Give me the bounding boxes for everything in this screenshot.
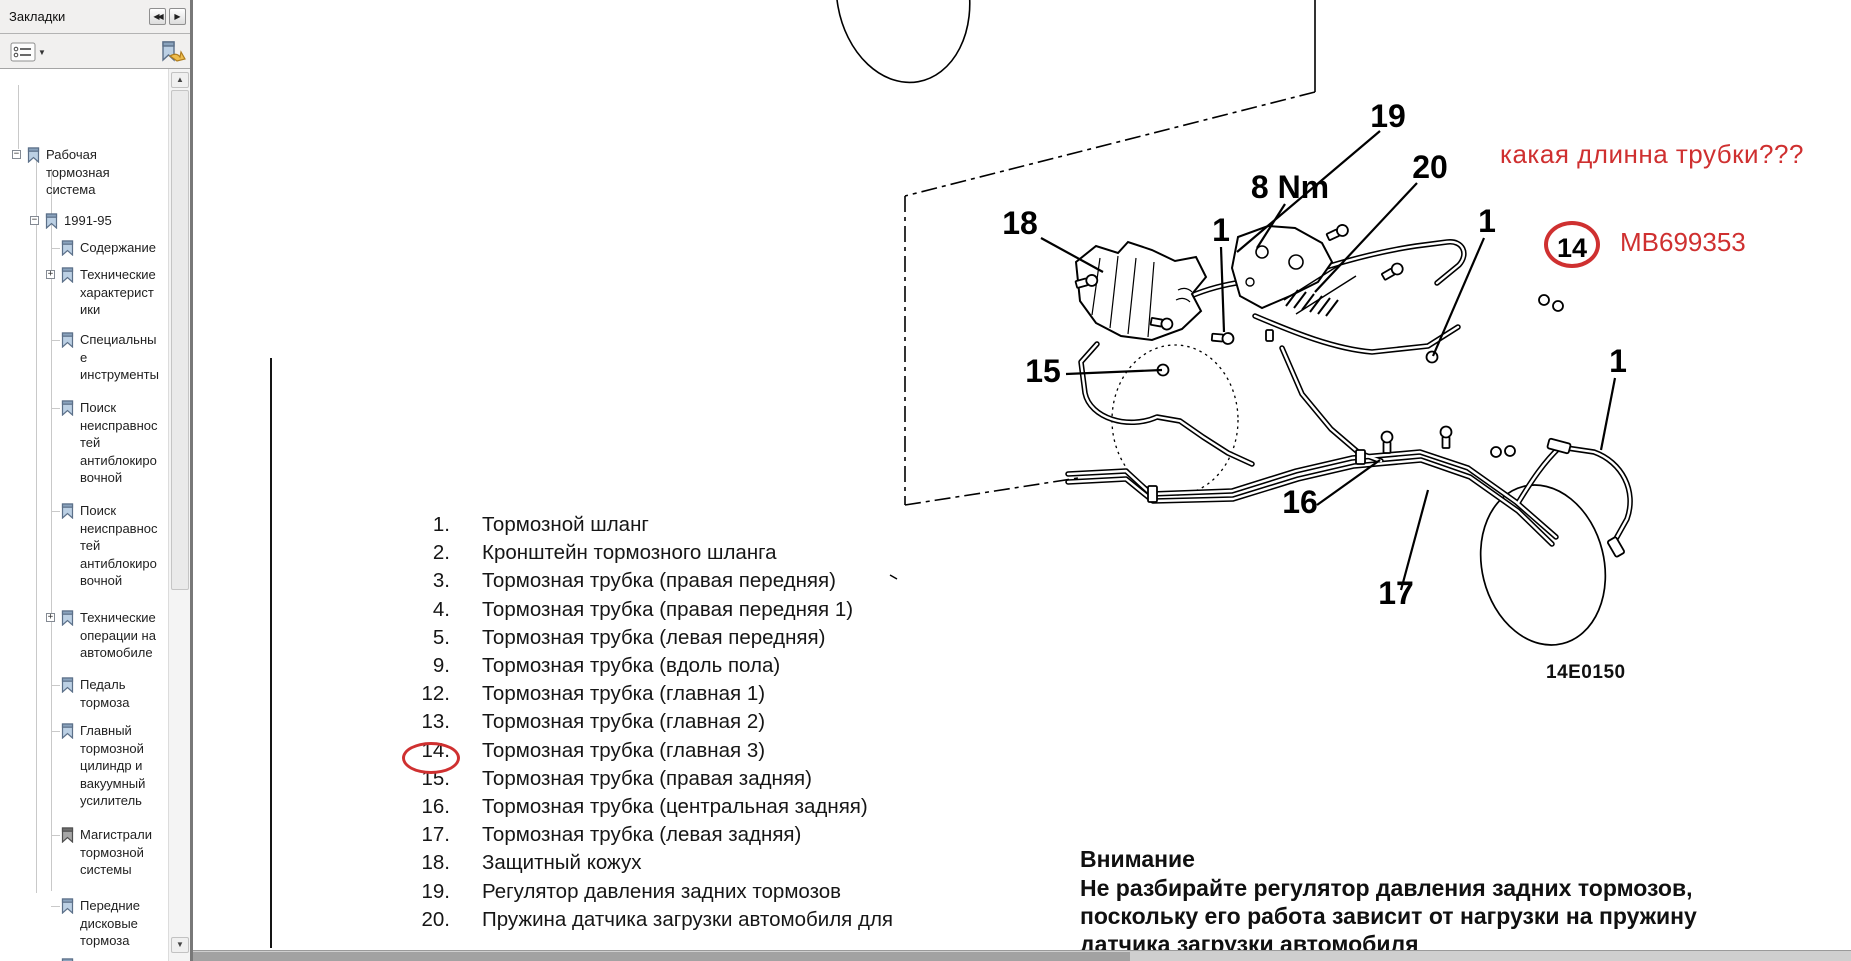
bookmark-label[interactable]: Технические характерист ики — [80, 266, 168, 319]
red-circle-annotation-list — [402, 742, 460, 774]
bookmark-icon — [61, 400, 74, 421]
tree-guide-stub — [51, 731, 60, 732]
part-number: 2. — [390, 541, 450, 565]
bookmark-item[interactable]: Педаль тормоза — [0, 676, 168, 711]
part-number: 18. — [390, 851, 450, 875]
red-annotation-part-number: MB699353 — [1620, 227, 1746, 258]
part-number: 13. — [390, 710, 450, 734]
red-circle-annotation-diagram: 14 — [1544, 221, 1600, 268]
bookmark-label[interactable]: Специальны е инструменты — [80, 331, 168, 384]
options-caret-icon[interactable]: ▼ — [38, 48, 46, 57]
page-border-line — [270, 358, 272, 948]
bookmark-item[interactable]: Специальны е инструменты — [0, 331, 168, 384]
bookmark-icon — [61, 723, 74, 744]
tree-guide-line — [18, 85, 19, 149]
bookmark-icon — [61, 610, 74, 631]
callout-leader-line — [1601, 378, 1615, 450]
wheel-right-rear — [1464, 472, 1622, 659]
part-name: Тормозная трубка (правая задняя) — [482, 767, 812, 791]
scrollbar-thumb[interactable] — [171, 90, 189, 590]
part-number: 4. — [390, 598, 450, 622]
bookmark-icon — [61, 827, 74, 848]
part-number: 1. — [390, 513, 450, 537]
parts-list-row: 15.Тормозная трубка (правая задняя) — [390, 767, 1290, 795]
bookmarks-scrollbar[interactable]: ▲ ▼ — [168, 69, 190, 961]
part-name: Регулятор давления задних тормозов — [482, 880, 841, 904]
warning-block: Внимание Не разбирайте регулятор давлени… — [1080, 845, 1800, 958]
bookmark-item[interactable]: Задние дисковые тормоза — [0, 957, 168, 961]
scroll-down-icon[interactable]: ▼ — [171, 937, 189, 953]
red-annotation-question: какая длинна трубки??? — [1500, 139, 1804, 170]
bookmark-item[interactable]: Поиск неисправнос тей антиблокиро вочной — [0, 502, 168, 590]
bookmark-options-icon[interactable] — [10, 42, 36, 62]
part-name: Тормозная трубка (левая задняя) — [482, 823, 801, 847]
callout-leader-line — [1221, 247, 1224, 332]
bookmark-label[interactable]: Главный тормозной цилиндр и вакуумный ус… — [80, 722, 168, 810]
callout-number: 8 Nm — [1251, 169, 1329, 205]
bookmarks-panel: Закладки ◀◀ ▶ ▼ −Рабочая тормо — [0, 0, 193, 961]
shield-part — [1076, 242, 1206, 340]
parts-list-row: 14.Тормозная трубка (главная 3) — [390, 739, 1290, 767]
bookmarks-toolbar: ▼ — [0, 35, 190, 69]
bookmark-icon — [61, 677, 74, 698]
bookmark-label[interactable]: Поиск неисправнос тей антиблокиро вочной — [80, 399, 168, 487]
expand-node-icon[interactable]: + — [46, 270, 55, 279]
part-number: 19. — [390, 880, 450, 904]
parts-list-row: 13.Тормозная трубка (главная 2) — [390, 710, 1290, 738]
part-number: 12. — [390, 682, 450, 706]
bookmark-item[interactable]: Передние дисковые тормоза — [0, 897, 168, 950]
scroll-up-icon[interactable]: ▲ — [171, 72, 189, 88]
part-number: 16. — [390, 795, 450, 819]
horizontal-scrollbar-thumb[interactable] — [193, 952, 1130, 961]
new-bookmark-icon[interactable] — [158, 40, 186, 65]
bookmark-icon — [61, 332, 74, 353]
bookmark-item[interactable]: Поиск неисправнос тей антиблокиро вочной — [0, 399, 168, 487]
bookmark-label[interactable]: Магистрали тормозной системы — [80, 826, 168, 879]
bookmark-label[interactable]: Рабочая тормозная система — [46, 146, 168, 199]
bookmark-icon — [27, 147, 40, 168]
parts-list-row: 16.Тормозная трубка (центральная задняя) — [390, 795, 1290, 823]
warning-title: Внимание — [1080, 845, 1800, 873]
tree-guide-stub — [51, 248, 60, 249]
callout-number: 1 — [1609, 343, 1627, 379]
callout-number: 19 — [1370, 98, 1406, 134]
tree-guide-stub — [51, 408, 60, 409]
bookmark-item[interactable]: +Технические операции на автомобиле — [0, 609, 168, 662]
collapse-node-icon[interactable]: − — [30, 216, 39, 225]
bookmark-label[interactable]: Педаль тормоза — [80, 676, 168, 711]
callout-number: 17 — [1378, 575, 1414, 611]
bookmark-icon — [61, 240, 74, 261]
tree-guide-stub — [51, 511, 60, 512]
bookmark-label[interactable]: 1991-95 — [64, 212, 168, 230]
tree-guide-stub — [51, 685, 60, 686]
bookmarks-header: Закладки ◀◀ ▶ — [0, 0, 190, 34]
bookmark-icon — [61, 898, 74, 919]
bookmark-label[interactable]: Содержание — [80, 239, 168, 257]
bookmark-item[interactable]: +Технические характерист ики — [0, 266, 168, 319]
bookmark-label[interactable]: Передние дисковые тормоза — [80, 897, 168, 950]
bookmark-item[interactable]: −1991-95 — [0, 212, 168, 230]
part-name: Тормозная трубка (главная 3) — [482, 739, 765, 763]
tree-guide-stub — [51, 906, 60, 907]
callout-number: 15 — [1025, 353, 1061, 389]
bookmarks-tree: −Рабочая тормозная система−1991-95Содерж… — [0, 69, 168, 961]
part-number: 5. — [390, 626, 450, 650]
part-number: 3. — [390, 569, 450, 593]
part-name: Тормозная трубка (центральная задняя) — [482, 795, 868, 819]
part-name: Тормозная трубка (главная 2) — [482, 710, 765, 734]
callout-number: 20 — [1412, 149, 1448, 185]
callout-leader-line — [1433, 238, 1484, 356]
part-number: 17. — [390, 823, 450, 847]
callout-number: 1 — [1478, 203, 1496, 239]
collapse-node-icon[interactable]: − — [12, 150, 21, 159]
bookmark-item[interactable]: Главный тормозной цилиндр и вакуумный ус… — [0, 722, 168, 810]
pdf-page: 1.Тормозной шланг2.Кронштейн тормозного … — [193, 0, 1851, 961]
horizontal-scrollbar[interactable] — [193, 950, 1851, 961]
tree-guide-stub — [51, 340, 60, 341]
callout-number: 18 — [1002, 205, 1038, 241]
callout-number: 16 — [1282, 484, 1318, 520]
bookmark-label[interactable]: Технические операции на автомобиле — [80, 609, 168, 662]
diagram-callouts: 188 Nm1920111151617 — [1002, 98, 1627, 611]
tree-guide-stub — [51, 835, 60, 836]
bookmark-icon — [45, 213, 58, 234]
bookmark-item[interactable]: Магистрали тормозной системы — [0, 826, 168, 879]
bookmark-label[interactable]: Задние дисковые тормоза — [80, 957, 168, 961]
figure-code: 14E0150 — [1546, 662, 1626, 684]
part-name: Пружина датчика загрузки автомобиля для — [482, 908, 893, 932]
bookmarks-title: Закладки — [9, 9, 65, 24]
bookmark-item[interactable]: Содержание — [0, 239, 168, 257]
brake-line-diagram: 188 Nm1920111151617 — [600, 0, 1851, 700]
callout-number: 1 — [1212, 212, 1230, 248]
warning-line: поскольку его работа зависит от нагрузки… — [1080, 902, 1800, 930]
wheel-arch-front — [823, 0, 984, 93]
warning-line: Не разбирайте регулятор давления задних … — [1080, 874, 1800, 902]
expand-node-icon[interactable]: + — [46, 613, 55, 622]
bookmark-label[interactable]: Поиск неисправнос тей антиблокиро вочной — [80, 502, 168, 590]
pdf-reader-window: Закладки ◀◀ ▶ ▼ −Рабочая тормо — [0, 0, 1851, 961]
bookmark-item[interactable]: −Рабочая тормозная система — [0, 146, 168, 199]
part-name: Защитный кожух — [482, 851, 642, 875]
part-number: 20. — [390, 908, 450, 932]
bookmark-icon — [61, 267, 74, 288]
bookmark-icon — [61, 503, 74, 524]
part-number: 9. — [390, 654, 450, 678]
collapse-panel-button[interactable]: ◀◀ — [149, 8, 166, 25]
expand-panel-button[interactable]: ▶ — [169, 8, 186, 25]
circled-callout-number: 14 — [1557, 233, 1587, 263]
